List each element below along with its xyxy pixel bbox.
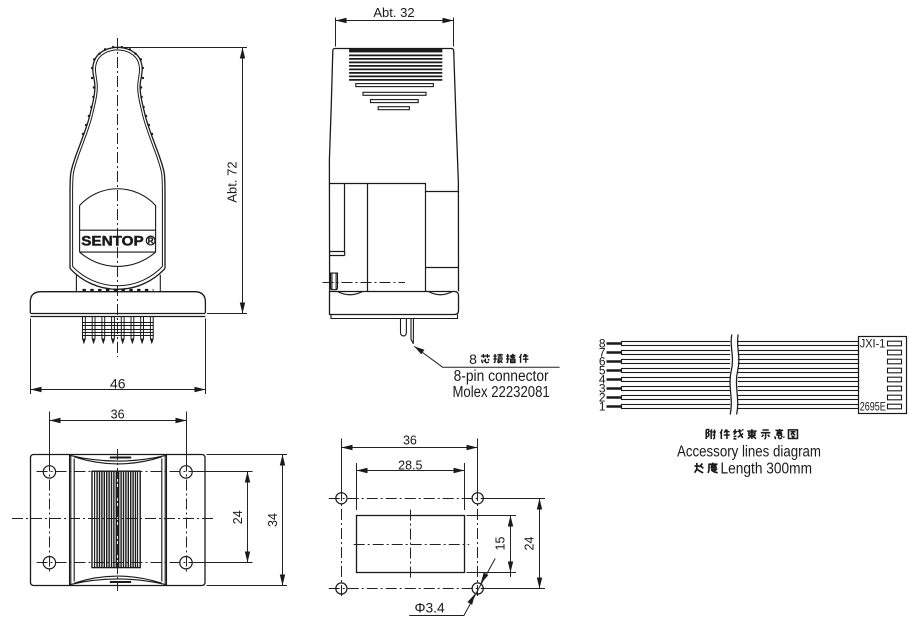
svg-text:JXI-1: JXI-1 <box>860 336 886 350</box>
svg-text:Abt. 32: Abt. 32 <box>373 5 414 20</box>
svg-text:R: R <box>148 236 154 245</box>
svg-text:8: 8 <box>469 351 477 367</box>
svg-text:1: 1 <box>599 400 606 414</box>
svg-text:Accessory lines diagram: Accessory lines diagram <box>677 443 821 460</box>
svg-text:Molex 22232081: Molex 22232081 <box>452 384 549 401</box>
svg-text:24: 24 <box>522 537 536 551</box>
svg-text:Length 300mm: Length 300mm <box>721 461 813 478</box>
svg-text:36: 36 <box>111 408 125 422</box>
svg-text:Abt. 72: Abt. 72 <box>225 161 240 202</box>
svg-text:36: 36 <box>403 433 417 447</box>
svg-text:2695E: 2695E <box>860 400 886 414</box>
svg-text:24: 24 <box>231 510 245 524</box>
svg-text:34: 34 <box>266 513 280 527</box>
svg-text:8-pin connector: 8-pin connector <box>454 368 549 385</box>
svg-text:Φ3.4: Φ3.4 <box>415 601 446 616</box>
svg-text:28.5: 28.5 <box>398 458 422 472</box>
svg-text:SENTOP: SENTOP <box>81 234 144 249</box>
svg-text:15: 15 <box>494 537 508 551</box>
svg-text:46: 46 <box>110 376 126 392</box>
